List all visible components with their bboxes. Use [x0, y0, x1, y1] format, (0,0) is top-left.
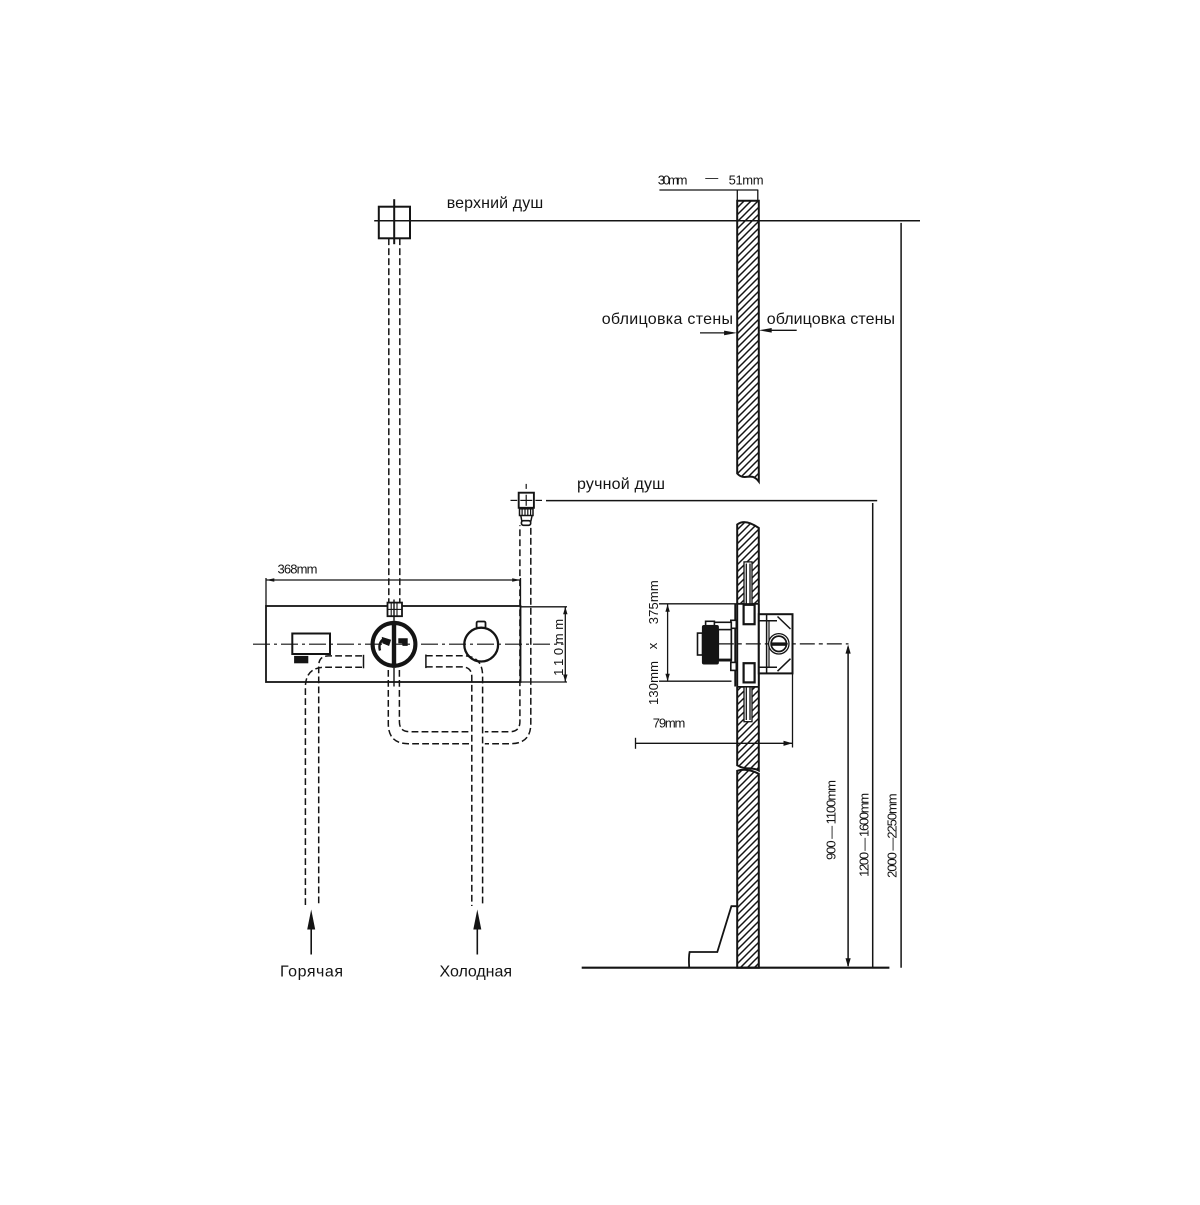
svg-text:375mm: 375mm: [646, 580, 661, 624]
svg-text:Холодная: Холодная: [440, 963, 513, 980]
svg-text:облицовка стены: облицовка стены: [767, 311, 895, 328]
svg-text:x: x: [645, 642, 660, 649]
svg-text:79mm: 79mm: [653, 716, 686, 731]
svg-text:2000 —2250mm: 2000 —2250mm: [884, 793, 899, 878]
svg-text:ручной душ: ручной душ: [577, 476, 665, 493]
svg-text:30mm: 30mm: [658, 173, 688, 188]
svg-text:1200 — 1600mm: 1200 — 1600mm: [856, 793, 871, 877]
svg-text:900 — 1100mm: 900 — 1100mm: [824, 780, 839, 860]
svg-text:Горячая: Горячая: [280, 963, 343, 980]
svg-text:51mm: 51mm: [729, 173, 764, 188]
svg-text:облицовка стены: облицовка стены: [602, 311, 733, 328]
svg-text:368mm: 368mm: [278, 562, 318, 577]
svg-text:110mm: 110mm: [551, 619, 566, 676]
svg-text:—: —: [705, 170, 718, 185]
svg-text:130mm: 130mm: [646, 661, 661, 705]
svg-text:верхний душ: верхний душ: [447, 195, 544, 212]
